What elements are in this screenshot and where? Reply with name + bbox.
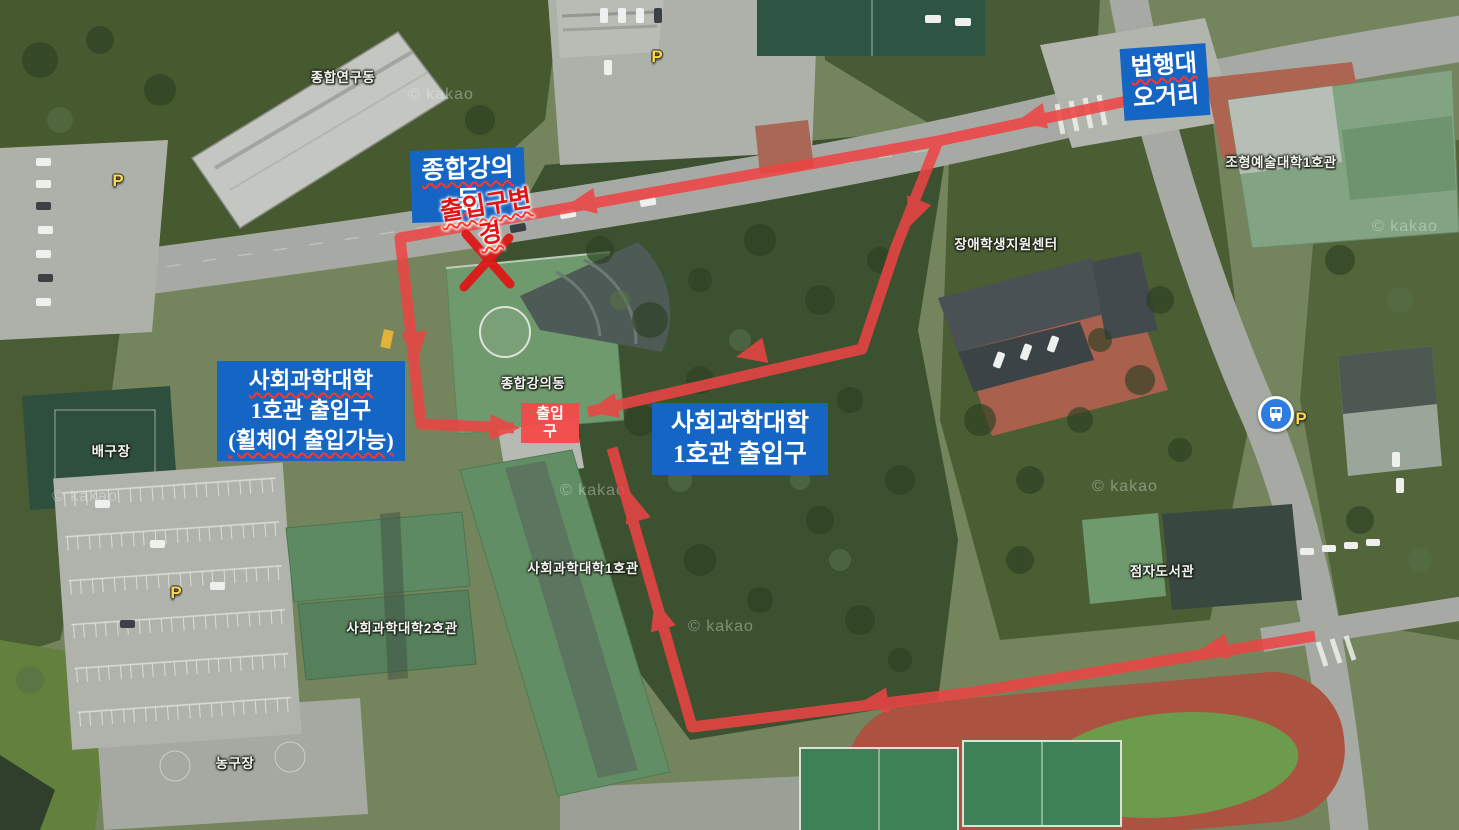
map-label-building: 조형예술대학1호관 (1225, 151, 1336, 171)
callout-line: 오거리 (1128, 79, 1204, 115)
callout-beophaengdae-ogeori: 법행대 오거리 (1120, 43, 1211, 121)
bus-glyph (1268, 406, 1284, 422)
parking-marker: P (112, 171, 123, 191)
callout-line: 종합강의 (416, 152, 519, 187)
campus-map-screenshot: 종합연구동 조형예술대학1호관 장애학생지원센터 종합강의동 사회과학대학1호관… (0, 0, 1459, 830)
callout-line: 사회과학대학 (223, 366, 399, 396)
map-label-building: 종합강의동 (501, 372, 566, 392)
entrance-line: 출입 (521, 405, 579, 423)
map-label-building: 점자도서관 (1130, 560, 1195, 580)
kakao-watermark: © kakao (408, 86, 474, 104)
parking-marker: P (170, 583, 181, 603)
kakao-watermark: © kakao (1092, 478, 1158, 496)
parking-marker: P (651, 47, 662, 67)
map-label-building: 장애학생지원센터 (954, 233, 1057, 253)
callout-line: 1호관 출입구 (658, 439, 822, 470)
bus-stop-icon (1258, 396, 1294, 432)
kakao-watermark: © kakao (52, 488, 118, 506)
callout-line: 사회과학대학 (658, 408, 822, 439)
callout-line: (휠체어 출입가능) (223, 426, 399, 456)
callout-entrance-main: 사회과학대학 1호관 출입구 (652, 403, 828, 475)
map-label-building: 농구장 (216, 752, 255, 772)
callout-line: 1호관 출입구 (223, 396, 399, 426)
map-label-building: 배구장 (92, 440, 131, 460)
kakao-watermark: © kakao (560, 482, 626, 500)
kakao-watermark: © kakao (1372, 218, 1438, 236)
entrance-line: 구 (521, 423, 579, 441)
callout-entrance-wheelchair: 사회과학대학 1호관 출입구 (휠체어 출입가능) (217, 361, 405, 461)
map-label-building: 사회과학대학1호관 (527, 557, 638, 577)
map-label-building: 사회과학대학2호관 (346, 617, 457, 637)
kakao-watermark: © kakao (688, 618, 754, 636)
map-label-building: 종합연구동 (311, 66, 376, 86)
building-braille-library (1082, 504, 1302, 610)
entrance-marker-box: 출입 구 (521, 403, 579, 443)
parking-marker: P (1295, 409, 1306, 429)
